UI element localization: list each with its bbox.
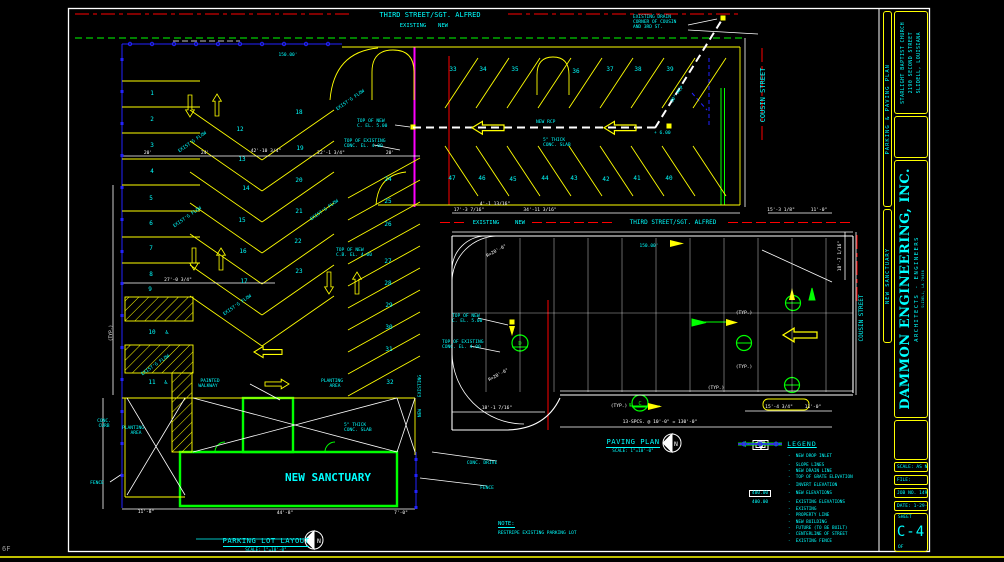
sheet-number: C-4 (895, 524, 927, 540)
drawing-label: 28 (384, 280, 392, 287)
drawing-label: 1 (150, 90, 154, 97)
drawing-label: CURB (98, 423, 109, 429)
drawing-label: 11'-0" (811, 207, 828, 213)
drawing-label: 42'-10 3/4" (251, 148, 281, 154)
drawing-label: 11'-8" (138, 509, 155, 515)
firm-subtitle: ARCHITECTS - ENGINEERS (914, 236, 920, 342)
drawing-label: 20 (295, 177, 303, 184)
drawing-label: 27'-0 3/4" (164, 277, 192, 283)
client-city: SLIDELL, LOUISIANA (916, 32, 922, 93)
drawing-label: EXISTING (417, 375, 423, 397)
drawing-label: C. EL. 5.00 (452, 318, 483, 324)
drawing-label: ♿ (165, 329, 169, 336)
titleblock-empty-box (894, 116, 928, 158)
drawing-label: 4'-1 13/16" (480, 201, 510, 207)
corner-note: 6F (2, 545, 10, 553)
drawing-label: (TYP.) (108, 325, 114, 342)
drawing-label: 30" RCP (669, 85, 685, 104)
drawing-label: 17'-3 7/16" (454, 207, 484, 213)
drawing-label: 34'-11 3/16" (523, 207, 556, 213)
legend-item-label: TOP OF GRATE ELEVATION (788, 475, 853, 480)
drawing-label: 16 (239, 248, 247, 255)
drawing-label: 13 (238, 156, 246, 163)
legend-item-label: CENTERLINE OF STREET (788, 532, 848, 537)
drawing-label: + 6.00 (654, 130, 671, 136)
plan-title-paving-plan: PAVING PLAN SCALE: 1"=10'-0" (573, 429, 693, 454)
drawing-label: 8 (149, 271, 153, 278)
drawing-label: NEW (515, 220, 526, 226)
drawing-label: 4 (150, 168, 154, 175)
drawing-label: EXISTING (400, 23, 427, 29)
legend-item-invert: INVERT ELEVATION (736, 481, 868, 489)
slope-arrow (809, 288, 815, 300)
drawing-label: 17 (240, 278, 248, 285)
drawing-label: 33 (449, 66, 457, 73)
titleblock-firm: DAMMON ENGINEERING, INC. ARCHITECTS - EN… (894, 160, 928, 418)
drawing-label: NEW (417, 409, 423, 418)
legend-item-label: SLOPE LINES (788, 463, 824, 468)
titleblock-client: STARLIGHT BAPTIST CHURCH 2190 SECOND STR… (894, 11, 928, 114)
drawing-label: 13-SPCS. @ 10'-0" = 130'-0" (623, 419, 698, 425)
exist-elev-symbol: 400.00 (736, 500, 784, 505)
drawing-label: 15'-4 3/4" (765, 404, 793, 410)
drawing-label: CONC. SLAB (543, 142, 571, 148)
drawing-label: C. EL. 5.00 (357, 123, 388, 129)
legend-item-exist-elev: 400.00EXISTING ELEVATIONS (736, 498, 868, 506)
drawing-label: 24' (201, 150, 209, 156)
drawing-label: EXIST'G FLOW (335, 88, 366, 112)
legend-item-label: EXISTING ELEVATIONS (788, 500, 845, 505)
drawing-label: C.B. EL. 4.00 (336, 252, 372, 258)
plan-name: PAVING PLAN (606, 437, 659, 448)
titleblock-file: FILE: (894, 475, 928, 485)
drawing-label: NEW (438, 23, 449, 29)
drawing-label: 26 (384, 221, 392, 228)
firm-name: DAMMON ENGINEERING, INC. (898, 168, 913, 410)
drawing-label: 18'-1 7/16" (482, 405, 512, 411)
drawing-label: EXIST'G FLOW (172, 205, 203, 229)
drawing-label: AREA (329, 383, 340, 389)
drawing-label: 9 (148, 286, 152, 293)
drawing-label: NEW SANCTUARY (285, 471, 371, 484)
drawing-label: 44 (541, 175, 549, 182)
drawing-label: (TYP.) (611, 403, 628, 409)
plan-title-parking-lot-layout: PARKING LOT LAYOUT SCALE: 1"=10'-0" (196, 528, 336, 553)
drawing-label: 3 (150, 142, 154, 149)
drawing-label: 150.00' (279, 52, 298, 58)
drawing-label: 46 (478, 175, 486, 182)
titleblock-empty-box (894, 420, 928, 460)
drawing-label: 6 (149, 220, 153, 227)
drawing-label: FENCE (90, 480, 104, 486)
drawing-label: R=20'-0" (485, 243, 507, 259)
drawing-label: 10 (148, 329, 156, 336)
drawing-label: D (518, 341, 521, 347)
drawing-label: 19 (296, 145, 304, 152)
paving-plan-linework (103, 18, 856, 509)
titleblock-date: DATE: 1-29-04 (894, 501, 928, 511)
drawing-label: AND 3RD ST. (633, 24, 663, 30)
plan-scale: SCALE: 1"=10'-0" (573, 449, 693, 454)
project-title: PARKING & PAVING PLAN (885, 64, 891, 155)
legend-items: NEW DROP INLETSLOPE LINESNEW DRAIN LINET… (736, 451, 868, 545)
drawing-label: 23 (295, 268, 303, 275)
drawing-label: 5 (149, 195, 153, 202)
titleblock-scale: SCALE: AS NOTED (894, 462, 928, 472)
legend-item-label: PROPERTY LINE (788, 513, 829, 518)
drawing-label: 29 (385, 302, 393, 309)
drawing-label: FENCE (480, 485, 494, 491)
drawing-label: THIRD STREET/SGT. ALFRED (379, 11, 480, 19)
drawing-label: COUSIN STREET (858, 294, 865, 341)
drawing-label: 21 (295, 208, 303, 215)
legend-item-label: INVERT ELEVATION (788, 483, 837, 488)
drawing-label: 150.00' (640, 243, 659, 249)
drawing-label: 7 (149, 245, 153, 252)
drawing-label: 18 (295, 109, 303, 116)
drawing-label: 20' (386, 150, 394, 156)
drawing-label: EXISTING (473, 220, 500, 226)
titleblock-drawing-name: NEW SANCTUARY (883, 209, 892, 343)
traffic-arrows (186, 94, 817, 389)
drawing-label: 22 (294, 238, 302, 245)
note-title: NOTE: (498, 521, 515, 528)
drawing-label: CONC. SLAB (344, 427, 372, 433)
drawing-name: NEW SANCTUARY (885, 248, 891, 304)
plan-scale: SCALE: 1"=10'-0" (196, 548, 336, 553)
drawing-label: WALKWAY (198, 383, 218, 389)
drawing-label: C (638, 401, 641, 407)
drawing-label: CONC. EL. 4.00 (442, 344, 481, 350)
sheet-label: SHEET (898, 515, 912, 520)
note-block: NOTE: RESTRIPE EXISTING PARKING LOT (498, 510, 577, 536)
firm-address: SLIDELL, LA 70458 (921, 270, 925, 308)
drawing-label: 30 (385, 324, 393, 331)
titleblock-sheet: SHEET C-4 OF (894, 513, 928, 552)
note-body: RESTRIPE EXISTING PARKING LOT (498, 531, 577, 536)
fence-markers (121, 42, 418, 509)
drawing-label: 47 (448, 175, 456, 182)
legend: LEGEND NEW DROP INLETSLOPE LINESNEW DRAI… (736, 440, 868, 545)
client-name: STARLIGHT BAPTIST CHURCH (900, 22, 906, 104)
drawing-label: 14 (242, 185, 250, 192)
drawing-label: (TYP.) (708, 385, 725, 391)
legend-item-label: NEW BUILDING (788, 520, 827, 525)
new-elev-symbol: 400.00 (736, 490, 784, 497)
drawing-label: 7'-0" (394, 510, 408, 516)
drawing-label: 44'-8" (277, 510, 294, 516)
drawing-label: 32 (386, 379, 394, 386)
drawing-label: 34 (479, 66, 487, 73)
legend-item-label: EXISTING FENCE (788, 539, 832, 544)
drawing-label: (TYP.) (736, 310, 753, 316)
drawing-label: 15 (238, 217, 246, 224)
drawing-label: 45 (509, 176, 517, 183)
drawing-label: AREA (130, 430, 141, 436)
drawing-label: 43 (570, 175, 578, 182)
drawing-label: 22'-1 3/4" (317, 150, 345, 156)
drawing-label: 12 (236, 126, 244, 133)
drawing-label: 11'-0" (805, 404, 822, 410)
drawing-label: CONC. EL. 4.00 (344, 143, 383, 149)
client-street: 2190 SECOND STREET (908, 32, 914, 93)
drawing-label: 38 (634, 66, 642, 73)
drawing-label: 31 (385, 346, 393, 353)
drawing-label: CONC. DRIVE (467, 460, 498, 466)
drawing-label: 37 (606, 66, 614, 73)
slope-arrow (692, 319, 706, 326)
drawing-label: 40 (665, 175, 673, 182)
drawing-label: EXIST'G FLOW (309, 198, 340, 222)
drawing-label: 39 (666, 66, 674, 73)
legend-item-label: NEW DRAIN LINE (788, 469, 832, 474)
drawing-label: 42 (602, 176, 610, 183)
drawing-label: 27 (384, 258, 392, 265)
cad-sheet: THIRD STREET/SGT. ALFREDEXISTINGNEWEXIST… (0, 0, 1004, 562)
titleblock-project: PARKING & PAVING PLAN (883, 11, 892, 207)
drawing-label: THIRD STREET/SGT. ALFRED (630, 219, 717, 226)
plan-name: PARKING LOT LAYOUT (223, 536, 310, 547)
drawing-label: 35 (511, 66, 519, 73)
drawing-label: 2 (150, 116, 154, 123)
legend-item-label: FUTURE (TO BE BUILT) (788, 526, 848, 531)
drawing-label: 41 (633, 175, 641, 182)
drawing-label: ♿ (164, 379, 168, 386)
legend-item-drop-inlet: NEW DROP INLET (736, 451, 868, 462)
drawing-label: 36 (572, 68, 580, 75)
titleblock-job-number: JOB NO. 1495a (894, 488, 928, 498)
drawing-label: 20' (144, 150, 152, 156)
drawing-label: 15'-3 1/8" (767, 207, 795, 213)
drawing-label: (TYP.) (736, 364, 753, 370)
drawing-label: 24 (384, 176, 392, 183)
sheet-of-label: OF (898, 545, 903, 550)
legend-item-label: NEW ELEVATIONS (788, 491, 832, 496)
legend-item-label: EXISTING (788, 507, 816, 512)
legend-item-fence: EXISTING FENCE (736, 538, 868, 544)
drawing-label: R=20'-0" (487, 367, 509, 383)
legend-item-new-elev: 400.00NEW ELEVATIONS (736, 489, 868, 498)
drawing-label: 25 (384, 198, 392, 205)
legend-item-label: NEW DROP INLET (788, 454, 832, 459)
drawing-label: COUSIN STREET (759, 67, 767, 123)
drawing-label: 11 (148, 379, 156, 386)
drawing-label: NEW RCP (536, 119, 556, 125)
drawing-label: 18'-7 1/16" (837, 241, 843, 271)
